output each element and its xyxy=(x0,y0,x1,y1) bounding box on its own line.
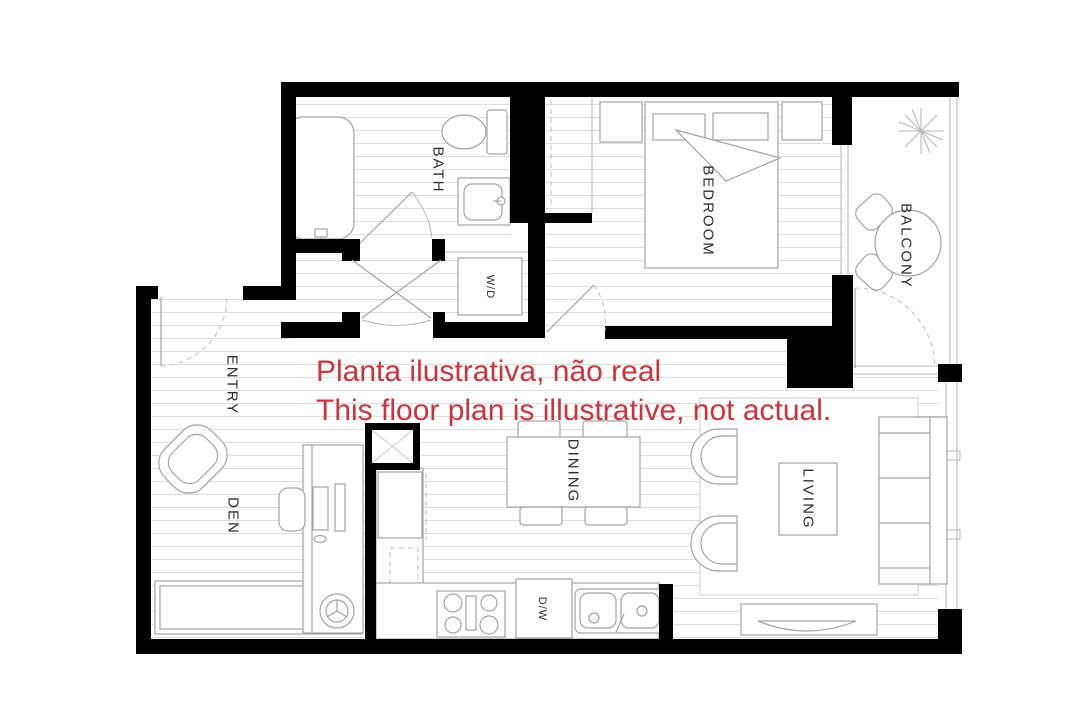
wall-wd-right xyxy=(528,223,545,338)
label-dishwasher: D/W xyxy=(536,597,548,621)
wall-top xyxy=(281,82,959,97)
den-stool xyxy=(320,594,354,628)
pillow xyxy=(713,113,768,140)
label-washer-dryer: W/D xyxy=(484,275,496,299)
wall-jamb xyxy=(433,312,445,338)
kitchen-sink xyxy=(575,589,665,633)
nightstand-right xyxy=(782,102,822,140)
wall-jamb xyxy=(342,312,360,338)
wall-jamb xyxy=(342,239,360,261)
floor-plan-drawing: BATH BEDROOM BALCONY ENTRY DEN DINING LI… xyxy=(0,0,1080,720)
wall-balcony-door-end xyxy=(938,364,962,382)
disclaimer-line-2: This floor plan is illustrative, not act… xyxy=(316,394,831,427)
stove xyxy=(437,591,505,637)
wall-kitchen xyxy=(365,468,376,639)
wall-hall-bottom-right xyxy=(445,322,545,338)
label-balcony: BALCONY xyxy=(898,203,915,289)
label-living: LIVING xyxy=(800,468,817,529)
disclaimer-line-1: Planta ilustrativa, não real xyxy=(316,355,661,388)
wall-closet-divider xyxy=(545,213,592,223)
nightstand-left xyxy=(600,102,642,142)
floor-plan-page: BATH BEDROOM BALCONY ENTRY DEN DINING LI… xyxy=(0,0,1080,720)
wall-entry-top xyxy=(243,286,296,300)
structural-column xyxy=(369,427,417,467)
wall-jamb xyxy=(432,239,445,261)
label-den: DEN xyxy=(225,497,242,535)
dining-chair xyxy=(585,507,627,525)
dining-chair xyxy=(520,507,562,525)
wall-hall-bottom xyxy=(281,322,342,338)
wall-bath-right xyxy=(510,97,545,223)
wall-balcony-stub xyxy=(832,97,852,145)
label-bath: BATH xyxy=(430,147,447,194)
wall-bottom xyxy=(136,639,962,654)
wall-balcony-corner xyxy=(832,275,853,388)
bathtub xyxy=(287,117,354,243)
balcony-door xyxy=(855,288,935,368)
balcony-plant-icon xyxy=(898,108,944,154)
wall-bath-left xyxy=(281,82,296,300)
sofa xyxy=(879,417,947,584)
label-entry: ENTRY xyxy=(224,355,241,416)
bathroom-sink xyxy=(458,178,510,225)
tv-cabinet xyxy=(741,604,877,635)
wall-bottom-right-block xyxy=(938,609,962,654)
wall-kitchen-end xyxy=(659,584,673,639)
wall-left xyxy=(136,286,151,654)
label-dining: DINING xyxy=(565,439,582,504)
fridge xyxy=(378,472,422,538)
label-bedroom: BEDROOM xyxy=(700,165,717,257)
desk-chair xyxy=(279,488,305,531)
